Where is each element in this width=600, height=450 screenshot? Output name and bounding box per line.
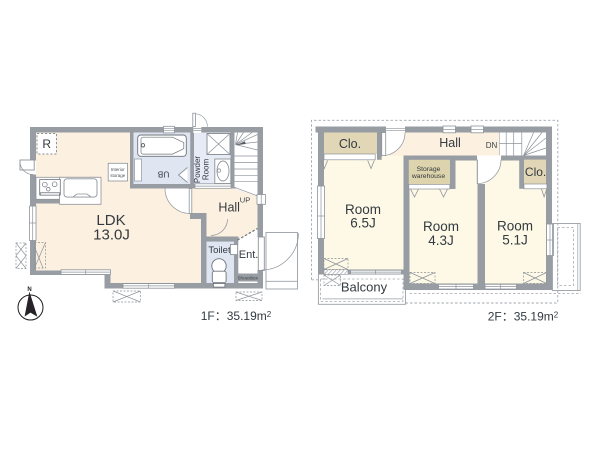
svg-text:Storage: Storage (417, 166, 441, 173)
svg-text:Room: Room (497, 219, 533, 234)
svg-text:13.0J: 13.0J (93, 226, 130, 243)
svg-text:Room: Room (423, 219, 459, 234)
svg-text:R: R (42, 137, 51, 151)
svg-text:Room: Room (201, 158, 210, 180)
svg-text:2F：35.19m2: 2F：35.19m2 (488, 309, 559, 323)
svg-text:UB: UB (157, 170, 169, 180)
svg-text:Ent.: Ent. (239, 249, 259, 261)
svg-text:Clo.: Clo. (525, 165, 546, 179)
svg-text:storage: storage (110, 173, 126, 178)
svg-text:Shoesbox: Shoesbox (237, 276, 258, 281)
svg-text:4.3J: 4.3J (428, 233, 454, 248)
svg-text:DN: DN (486, 141, 498, 150)
svg-text:Clo.: Clo. (339, 137, 361, 151)
svg-text:1F：35.19m2: 1F：35.19m2 (201, 309, 272, 323)
svg-text:UP: UP (240, 196, 251, 205)
svg-text:Toilet: Toilet (208, 245, 231, 256)
svg-text:warehouse: warehouse (411, 173, 445, 180)
svg-text:Interior: Interior (111, 167, 126, 172)
svg-text:N: N (27, 287, 31, 293)
svg-text:Hall: Hall (218, 201, 240, 215)
svg-text:5.1J: 5.1J (502, 233, 528, 248)
svg-text:Hall: Hall (439, 136, 461, 150)
svg-text:6.5J: 6.5J (350, 216, 376, 231)
svg-text:Balcony: Balcony (341, 279, 388, 294)
